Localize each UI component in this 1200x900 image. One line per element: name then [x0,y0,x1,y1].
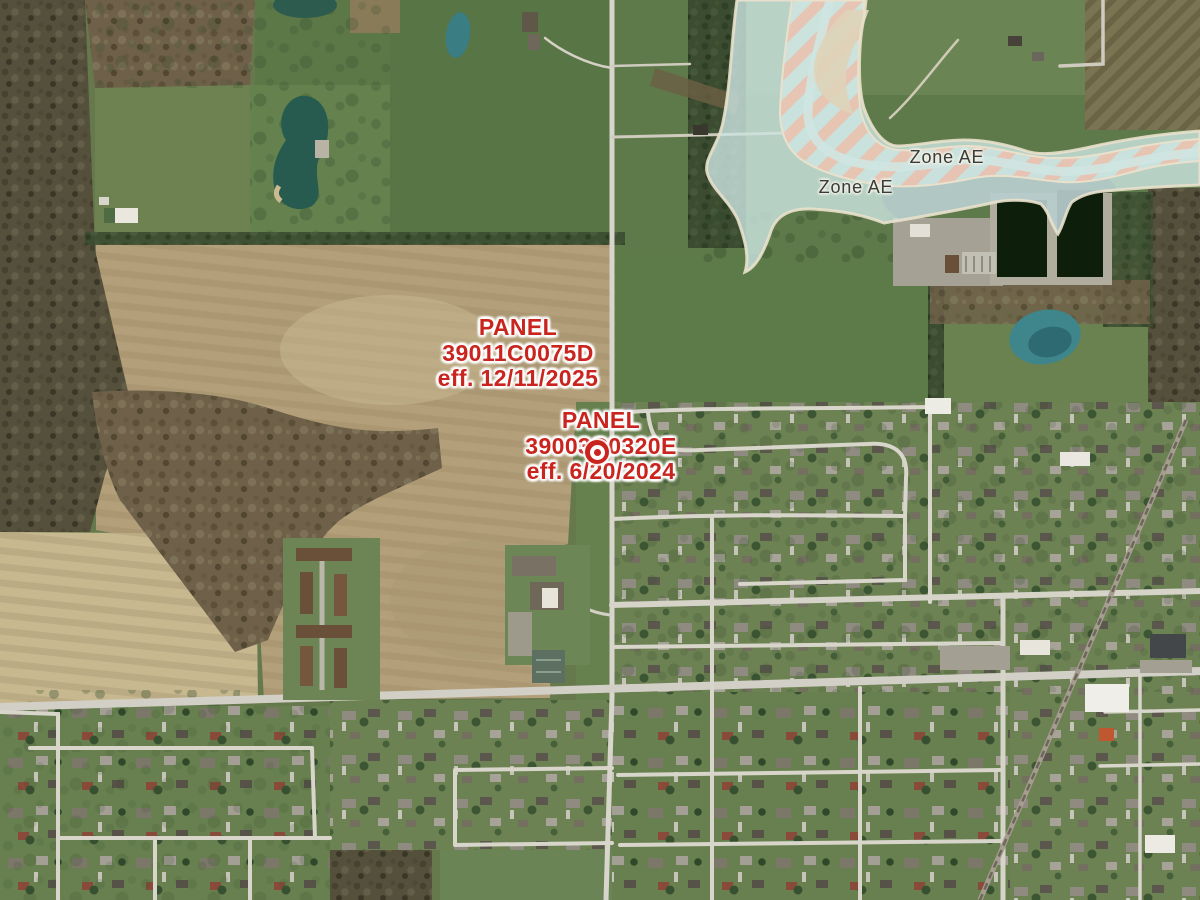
location-marker-icon[interactable] [585,440,609,464]
map-canvas[interactable]: Zone AE Zone AE PANEL 39011C0075D eff. 1… [0,0,1200,900]
